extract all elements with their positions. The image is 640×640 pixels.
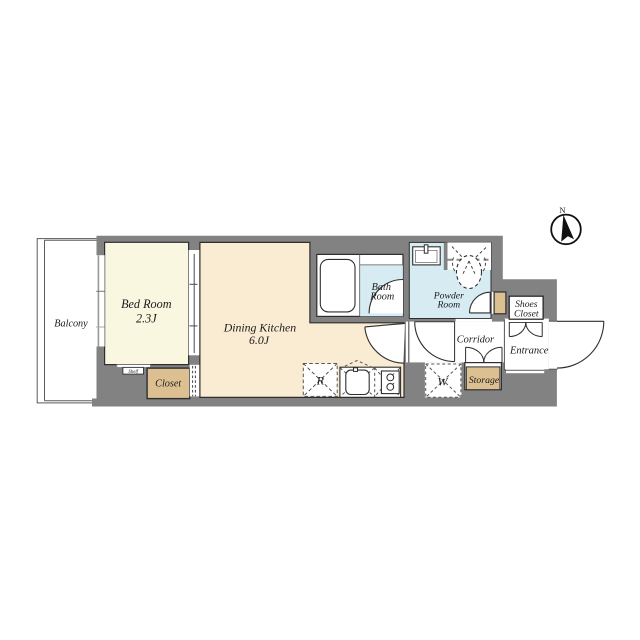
- svg-text:Corridor: Corridor: [457, 334, 495, 345]
- svg-text:W: W: [438, 374, 449, 388]
- svg-text:Closet: Closet: [514, 309, 539, 320]
- svg-text:2.3J: 2.3J: [136, 311, 157, 325]
- svg-text:Bed Room: Bed Room: [121, 297, 172, 311]
- svg-text:6.0J: 6.0J: [249, 333, 270, 347]
- svg-text:Room: Room: [436, 300, 460, 311]
- svg-text:Entrance: Entrance: [509, 346, 549, 357]
- svg-text:Room: Room: [369, 291, 394, 302]
- svg-text:R: R: [316, 374, 325, 388]
- svg-text:Balcony: Balcony: [54, 318, 88, 329]
- svg-text:Closet: Closet: [155, 379, 182, 390]
- svg-text:Shelf: Shelf: [128, 370, 138, 375]
- svg-text:N: N: [559, 205, 565, 215]
- svg-text:Storage: Storage: [469, 375, 500, 386]
